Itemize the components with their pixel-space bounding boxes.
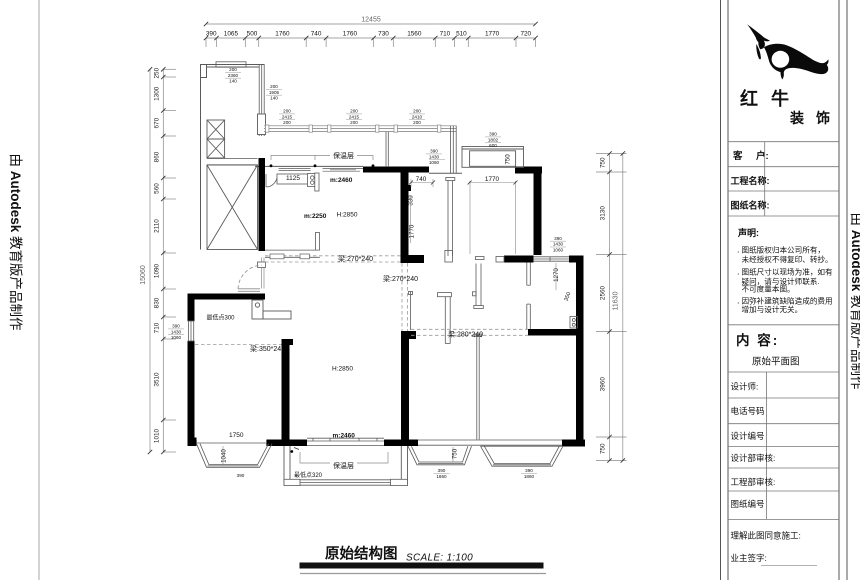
- svg-text:390: 390: [237, 473, 245, 478]
- svg-text:860: 860: [154, 151, 161, 162]
- svg-text:200: 200: [413, 120, 421, 125]
- svg-text:200: 200: [350, 109, 358, 114]
- svg-text:390: 390: [489, 132, 497, 137]
- svg-text:140: 140: [270, 96, 278, 101]
- svg-text:2415: 2415: [282, 114, 293, 119]
- svg-text:因弥补建筑缺陷造成的费用: 因弥补建筑缺陷造成的费用: [742, 296, 833, 306]
- svg-text:由 Autodesk 教育版产品制作: 由 Autodesk 教育版产品制作: [849, 212, 860, 389]
- svg-text:3960: 3960: [599, 377, 606, 392]
- svg-text:200: 200: [283, 120, 291, 125]
- svg-text:500: 500: [247, 31, 258, 38]
- svg-text:m:2460: m:2460: [333, 432, 356, 439]
- svg-text:2415: 2415: [349, 114, 360, 119]
- svg-text:200: 200: [413, 109, 421, 114]
- svg-text:m:2250: m:2250: [304, 213, 327, 220]
- svg-text:830: 830: [154, 297, 161, 308]
- svg-text:710: 710: [440, 31, 451, 38]
- svg-text:2560: 2560: [599, 285, 606, 300]
- svg-text:330: 330: [408, 195, 415, 206]
- svg-text:390: 390: [525, 468, 533, 473]
- svg-text:最低点320: 最低点320: [294, 471, 323, 479]
- svg-text:250: 250: [154, 67, 161, 78]
- svg-text:内 容:: 内 容:: [736, 332, 779, 348]
- svg-text:200: 200: [283, 109, 291, 114]
- svg-text:装饰: 装饰: [789, 110, 842, 126]
- svg-text:740: 740: [311, 31, 322, 38]
- svg-text:m:2460: m:2460: [330, 177, 353, 184]
- svg-text:1860: 1860: [524, 474, 535, 479]
- svg-text:1090: 1090: [154, 263, 161, 278]
- svg-text:510: 510: [456, 31, 467, 38]
- svg-text:740: 740: [416, 176, 427, 183]
- svg-text:1010: 1010: [154, 428, 161, 443]
- svg-text:H:2850: H:2850: [332, 366, 353, 373]
- svg-text:保温层: 保温层: [333, 461, 354, 470]
- svg-text:560: 560: [154, 183, 161, 194]
- svg-text:390: 390: [172, 324, 180, 329]
- svg-text:200: 200: [350, 120, 358, 125]
- svg-text:3510: 3510: [154, 372, 161, 387]
- svg-text:电话号码: 电话号码: [731, 406, 765, 416]
- svg-text:2360: 2360: [228, 73, 239, 78]
- svg-text:390: 390: [206, 31, 217, 38]
- svg-text:梁:270*240: 梁:270*240: [383, 274, 418, 283]
- svg-text:设计部审核:: 设计部审核:: [731, 453, 776, 463]
- svg-text:.: .: [737, 245, 740, 255]
- svg-text:图纸版权归本公司所有，: 图纸版权归本公司所有，: [742, 245, 826, 255]
- svg-text:梁:270*240: 梁:270*240: [338, 254, 373, 263]
- svg-text:1065: 1065: [224, 31, 239, 38]
- svg-text:1060: 1060: [171, 335, 182, 340]
- svg-text:由 Autodesk 教育版产品制作: 由 Autodesk 教育版产品制作: [8, 153, 23, 330]
- svg-text:1750: 1750: [229, 432, 244, 439]
- svg-text:390: 390: [430, 149, 438, 154]
- svg-text:1300: 1300: [154, 86, 161, 101]
- svg-text:750: 750: [452, 448, 459, 459]
- svg-text:750: 750: [505, 154, 512, 165]
- svg-text:SCALE: 1:100: SCALE: 1:100: [406, 553, 473, 564]
- svg-text:3130: 3130: [599, 206, 606, 221]
- svg-text:390: 390: [438, 468, 446, 473]
- svg-text:原始结构图: 原始结构图: [325, 545, 398, 563]
- svg-text:11630: 11630: [613, 291, 620, 310]
- svg-text:H:2850: H:2850: [337, 212, 358, 219]
- svg-text:保温层: 保温层: [333, 151, 354, 160]
- svg-text:390: 390: [554, 236, 562, 241]
- svg-text:不可度量本图。: 不可度量本图。: [742, 284, 795, 294]
- svg-text:1905: 1905: [269, 90, 280, 95]
- svg-text:工程名称:: 工程名称:: [731, 175, 770, 186]
- svg-text:1802: 1802: [488, 137, 499, 142]
- svg-text:2110: 2110: [154, 219, 161, 233]
- svg-text:710: 710: [154, 322, 161, 333]
- svg-text:140: 140: [229, 79, 237, 84]
- svg-text:1760: 1760: [343, 31, 358, 38]
- svg-text:15060: 15060: [140, 265, 147, 285]
- svg-text:200: 200: [229, 67, 237, 72]
- svg-text:1430: 1430: [429, 154, 440, 159]
- svg-text:1770: 1770: [409, 224, 416, 238]
- svg-text:750: 750: [599, 443, 606, 454]
- svg-text:1770: 1770: [485, 176, 500, 183]
- svg-text:1060: 1060: [553, 247, 564, 252]
- svg-text:600: 600: [489, 143, 497, 148]
- svg-text:720: 720: [520, 31, 531, 38]
- svg-text:1430: 1430: [553, 242, 564, 247]
- svg-text:2410: 2410: [412, 114, 423, 119]
- svg-text:1060: 1060: [429, 160, 440, 165]
- svg-text:200: 200: [270, 84, 278, 89]
- svg-text:.: .: [737, 267, 740, 277]
- svg-text:1770: 1770: [485, 31, 500, 38]
- svg-text:1430: 1430: [171, 329, 182, 334]
- svg-text:梁:350*24: 梁:350*24: [250, 344, 281, 353]
- svg-text:12455: 12455: [361, 17, 381, 24]
- svg-text:业主签字:: 业主签字:: [731, 553, 767, 563]
- svg-text:未经授权不得复印、转抄。: 未经授权不得复印、转抄。: [742, 254, 833, 264]
- svg-text:图纸编号: 图纸编号: [731, 499, 765, 509]
- svg-text:1040: 1040: [221, 449, 228, 463]
- svg-text:红牛: 红牛: [740, 88, 802, 109]
- svg-text:750: 750: [599, 157, 606, 168]
- svg-text:声明:: 声明:: [737, 227, 759, 238]
- svg-text:730: 730: [378, 31, 389, 38]
- svg-text:原始平面图: 原始平面图: [752, 356, 800, 368]
- svg-text:670: 670: [154, 117, 161, 128]
- svg-text:图纸名称:: 图纸名称:: [731, 200, 770, 211]
- svg-text:工程部审核:: 工程部审核:: [731, 477, 776, 487]
- svg-text:户:: 户:: [755, 150, 769, 162]
- svg-text:最低点300: 最低点300: [207, 314, 236, 322]
- svg-text:1270: 1270: [553, 268, 560, 282]
- svg-text:1125: 1125: [286, 175, 300, 182]
- svg-text:增加与设计无关。: 增加与设计无关。: [742, 304, 803, 314]
- svg-text:图纸尺寸以现场为准，如有: 图纸尺寸以现场为准，如有: [742, 267, 834, 277]
- svg-text:梁:280*240: 梁:280*240: [448, 330, 483, 339]
- svg-text:客: 客: [732, 150, 743, 162]
- svg-text:1860: 1860: [436, 474, 447, 479]
- svg-text:理解此图同意施工:: 理解此图同意施工:: [731, 531, 801, 541]
- svg-text:设计师:: 设计师:: [731, 382, 759, 392]
- svg-text:.: .: [737, 296, 740, 306]
- svg-text:设计编号: 设计编号: [731, 431, 765, 441]
- svg-text:1560: 1560: [407, 31, 422, 38]
- svg-text:1760: 1760: [275, 31, 290, 38]
